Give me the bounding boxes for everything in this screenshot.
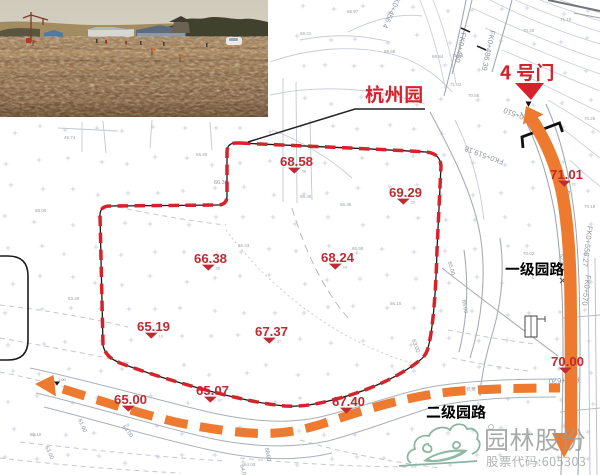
svg-text:71.03: 71.03 [450, 82, 462, 87]
svg-text:66.38: 66.38 [194, 251, 227, 266]
svg-text:46.74: 46.74 [64, 135, 76, 140]
svg-text:37: 37 [277, 340, 281, 344]
svg-text:00: 00 [136, 408, 140, 412]
svg-text:40: 40 [354, 410, 358, 414]
svg-text:66.97: 66.97 [347, 9, 359, 14]
svg-text:66.10: 66.10 [390, 301, 402, 306]
svg-text:01: 01 [572, 183, 576, 187]
svg-text:1.00: 1.00 [58, 377, 67, 382]
svg-text:69.98: 69.98 [384, 49, 396, 54]
svg-text:68.24: 68.24 [321, 250, 355, 265]
svg-text:66.40: 66.40 [196, 152, 208, 157]
svg-text:70.26: 70.26 [584, 116, 596, 121]
svg-text:67.40: 67.40 [332, 394, 365, 409]
svg-text:58.00: 58.00 [35, 208, 47, 213]
svg-text:66.36: 66.36 [340, 202, 352, 207]
svg-text:70.02: 70.02 [523, 251, 535, 256]
svg-text:70.18: 70.18 [584, 204, 596, 209]
svg-text:65.00: 65.00 [114, 392, 147, 407]
svg-text:58: 58 [302, 170, 306, 174]
svg-text:71.19: 71.19 [560, 17, 572, 22]
svg-text:19: 19 [159, 335, 163, 339]
svg-text:63.40: 63.40 [68, 296, 80, 301]
svg-text:71.01: 71.01 [550, 167, 583, 182]
svg-text:69.29: 69.29 [389, 185, 422, 200]
svg-text:65.07: 65.07 [196, 383, 229, 398]
svg-text:65.19: 65.19 [137, 319, 170, 334]
svg-text:69.84: 69.84 [432, 54, 444, 59]
svg-text:67.37: 67.37 [255, 324, 288, 339]
svg-text:66.30: 66.30 [300, 194, 312, 199]
svg-text:68.58: 68.58 [280, 154, 313, 169]
svg-text:24: 24 [343, 266, 347, 270]
svg-text:64.00: 64.00 [244, 462, 256, 467]
svg-text:07: 07 [218, 399, 222, 403]
svg-text:60.10: 60.10 [30, 432, 42, 437]
svg-text:69.21: 69.21 [300, 31, 312, 36]
svg-text:38: 38 [216, 267, 220, 271]
svg-text:70.30: 70.30 [523, 28, 535, 33]
svg-text:29: 29 [411, 201, 415, 205]
svg-text:70.00: 70.00 [551, 354, 584, 369]
svg-text:65.43: 65.43 [238, 243, 250, 248]
svg-text:00: 00 [573, 370, 577, 374]
svg-text:70.56: 70.56 [468, 93, 480, 98]
svg-text:71.19: 71.19 [452, 53, 464, 58]
